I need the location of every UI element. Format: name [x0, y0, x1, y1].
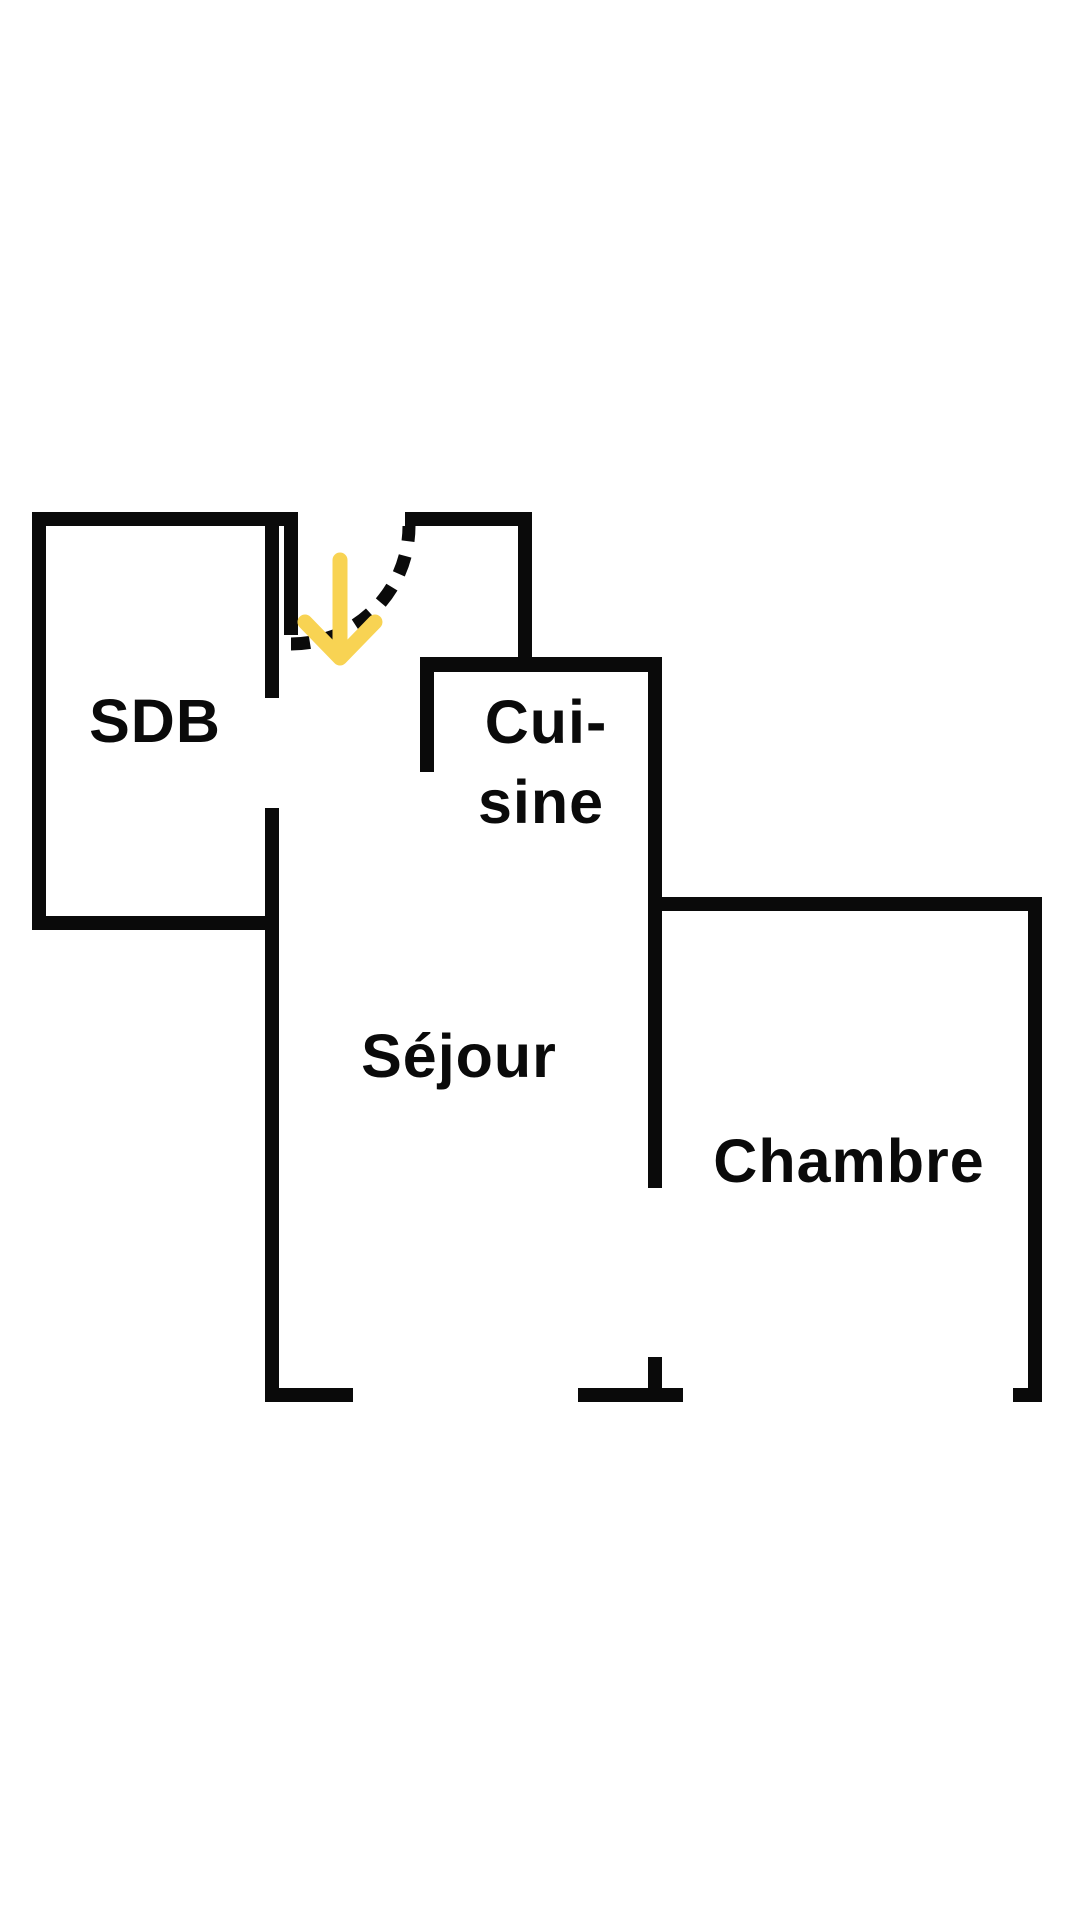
wall-sdb-bottom [32, 916, 279, 930]
wall-sdb-top [32, 512, 298, 526]
entry-door-leaf [284, 525, 298, 635]
wall-kitchen-top [420, 657, 662, 672]
wall-divider-bottom-stub [648, 1357, 662, 1402]
wall-bottom-sejour-left-segment [265, 1388, 353, 1402]
wall-sdb-left [32, 512, 46, 930]
room-label-sdb: SDB [89, 687, 221, 755]
wall-kitchen-left-stub [420, 657, 434, 772]
room-label-cuisine-line2: sine [478, 768, 604, 836]
page-background: SDB Cui- sine Séjour Chambre [0, 0, 1080, 1920]
wall-sdb-hall-divider-upper [265, 512, 279, 698]
walls [32, 512, 1042, 1402]
wall-kitchen-right-divider [648, 657, 662, 1188]
room-label-chambre: Chambre [713, 1127, 984, 1195]
wall-entry-right-stub [405, 512, 532, 526]
wall-chambre-right [1028, 897, 1042, 1402]
room-label-sejour: Séjour [361, 1022, 557, 1090]
wall-sejour-left [265, 808, 279, 1402]
wall-chambre-top [648, 897, 1042, 911]
room-label-cuisine-line1: Cui- [485, 688, 608, 756]
wall-entry-right-vertical [518, 512, 532, 662]
wall-bottom-sejour-right-segment [578, 1388, 683, 1402]
entrance-arrow-icon [305, 560, 375, 658]
wall-chambre-bottom-foot [1013, 1388, 1042, 1402]
floor-plan: SDB Cui- sine Séjour Chambre [0, 0, 1080, 1920]
